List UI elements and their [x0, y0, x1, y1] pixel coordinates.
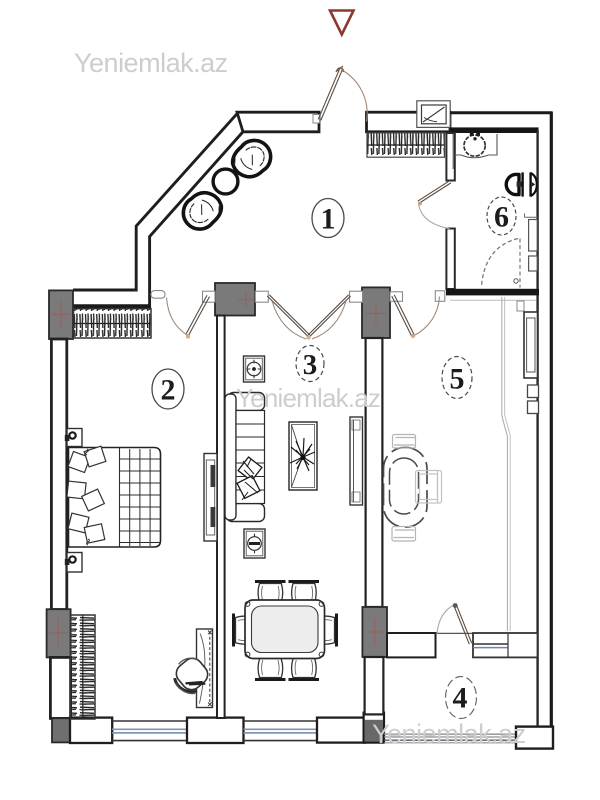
svg-text:3: 3	[303, 349, 318, 381]
svg-text:4: 4	[453, 682, 468, 715]
svg-text:5: 5	[450, 363, 465, 396]
svg-text:Yeniemlak.az: Yeniemlak.az	[372, 719, 526, 749]
svg-text:6: 6	[494, 201, 509, 234]
svg-text:2: 2	[161, 374, 176, 407]
svg-text:Yeniemlak.az: Yeniemlak.az	[236, 383, 380, 413]
svg-text:1: 1	[321, 203, 336, 236]
svg-text:Yeniemlak.az: Yeniemlak.az	[74, 48, 228, 78]
